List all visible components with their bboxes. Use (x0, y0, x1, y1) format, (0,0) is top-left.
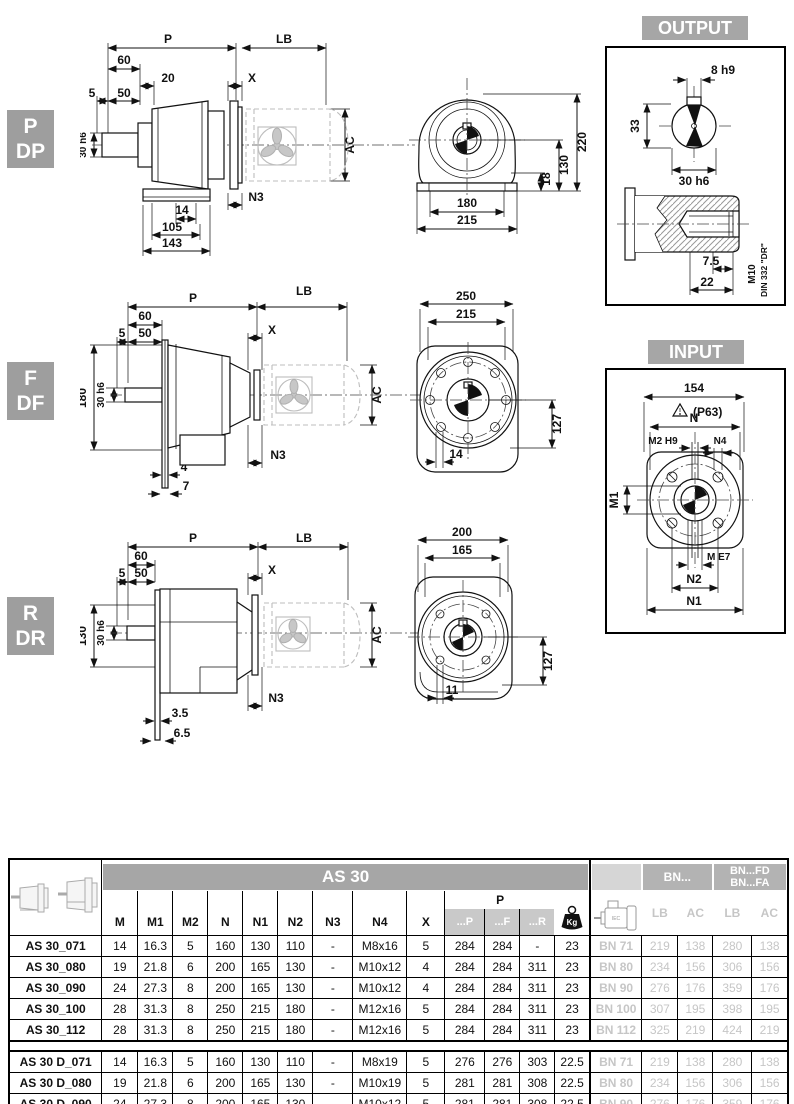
cell: 130 (243, 1051, 278, 1073)
cell: 22.5 (555, 1094, 590, 1104)
svg-text:LB: LB (296, 531, 312, 545)
svg-text:130: 130 (557, 155, 571, 175)
cell: 130 (278, 978, 313, 999)
cell: 165 (243, 978, 278, 999)
svg-text:P: P (189, 531, 197, 545)
input-drawing: 154 (P63) N M2 H9 N4 M1 M E7 N2 N1 (607, 370, 784, 632)
table-row: AS 30 D_0902427.38200165130-M10x12528128… (9, 1094, 788, 1104)
col-header-n4: N4 (353, 891, 407, 936)
cell: 4 (407, 978, 445, 999)
fdf-front-outline (410, 342, 526, 472)
cell: AS 30_100 (9, 999, 102, 1020)
svg-text:11: 11 (446, 683, 459, 697)
cell: 16.3 (138, 1051, 173, 1073)
output-title: OUTPUT (642, 16, 748, 40)
pdp-front-drawing: 220 130 18 180 215 (393, 66, 593, 251)
table-row: AS 30 D_0711416.35160130110-M8x195276276… (9, 1051, 788, 1073)
svg-text:8 h9: 8 h9 (711, 63, 735, 77)
fan-icon (258, 127, 296, 165)
cell: AS 30_112 (9, 1020, 102, 1042)
cell: 130 (278, 1073, 313, 1094)
pdp-side-drawing: P LB 60 20 5 50 30 h6 X AC N3 14 105 143 (80, 5, 430, 280)
cell: 156 (678, 957, 713, 978)
svg-text:M2 H9: M2 H9 (648, 436, 678, 447)
weight-header-cell: Kg (555, 891, 590, 936)
svg-text:143: 143 (162, 236, 182, 250)
variant-badge-fdf: F DF (7, 362, 54, 420)
badge-label: F (7, 366, 54, 391)
col-header-lb2: LB (713, 891, 752, 936)
cell: 424 (713, 1020, 752, 1042)
cell: BN 90 (590, 1094, 642, 1104)
cell: - (313, 978, 353, 999)
svg-text:5: 5 (119, 326, 126, 340)
cell: 6 (173, 957, 208, 978)
p-group-header: P ...P ...F ...R (445, 891, 555, 936)
cell: 311 (520, 957, 555, 978)
gearbox-icon (57, 876, 101, 916)
badge-label: P (7, 114, 54, 139)
kg-weight-icon: Kg (559, 905, 585, 932)
cell: M10x19 (353, 1073, 407, 1094)
cell: 219 (642, 936, 678, 957)
svg-text:30 h6: 30 h6 (96, 382, 107, 408)
cell: 5 (407, 1020, 445, 1042)
cell: 156 (752, 1073, 788, 1094)
cell: 5 (407, 1094, 445, 1104)
cell: 281 (445, 1073, 485, 1094)
svg-text:N3: N3 (268, 691, 284, 705)
cell: 160 (208, 1051, 243, 1073)
svg-text:180: 180 (457, 196, 477, 210)
cell: 23 (555, 978, 590, 999)
svg-text:N3: N3 (270, 448, 286, 462)
cell: 284 (485, 999, 520, 1020)
cell: 8 (173, 978, 208, 999)
bnfd-banner: BN...FD BN...FA (713, 859, 788, 891)
svg-text:N: N (690, 411, 699, 425)
fdf-front-drawing: 250 215 127 14 (390, 288, 595, 513)
svg-text:AC: AC (370, 626, 384, 644)
cell: 219 (678, 1020, 713, 1042)
col-header-n: N (208, 891, 243, 936)
cell: 215 (243, 999, 278, 1020)
svg-text:7: 7 (183, 479, 190, 493)
cell: 4 (407, 957, 445, 978)
svg-text:127: 127 (550, 414, 564, 434)
svg-text:X: X (248, 71, 256, 85)
cell: 234 (642, 957, 678, 978)
cell: 306 (713, 1073, 752, 1094)
cell: 160 (208, 936, 243, 957)
table-row: AS 30 D_0801921.86200165130-M10x19528128… (9, 1073, 788, 1094)
cell: 276 (445, 1051, 485, 1073)
cell: 284 (485, 978, 520, 999)
cell: M10x12 (353, 957, 407, 978)
svg-text:30 h6: 30 h6 (96, 620, 107, 646)
cell: BN 80 (590, 957, 642, 978)
cell: 156 (752, 957, 788, 978)
cell: 22.5 (555, 1073, 590, 1094)
cell: M8x19 (353, 1051, 407, 1073)
cell: 284 (445, 1020, 485, 1042)
svg-text:50: 50 (134, 566, 148, 580)
cell: 5 (407, 999, 445, 1020)
cell: 19 (102, 957, 138, 978)
cell: 5 (407, 936, 445, 957)
table-band-row: AS 30 BN... BN...FD BN...FA (9, 859, 788, 891)
cell: 27.3 (138, 1094, 173, 1104)
col-header-n3: N3 (313, 891, 353, 936)
cell: 284 (485, 957, 520, 978)
svg-text:LB: LB (296, 285, 312, 298)
series-banner: AS 30 (102, 859, 590, 891)
svg-text:30 h6: 30 h6 (679, 174, 710, 188)
cell: 138 (678, 936, 713, 957)
cell: 284 (445, 936, 485, 957)
svg-text:215: 215 (456, 307, 476, 321)
svg-text:50: 50 (138, 326, 152, 340)
svg-text:20: 20 (161, 71, 175, 85)
pdp-front-outline (409, 78, 525, 198)
cell: 280 (713, 936, 752, 957)
col-header-n2: N2 (278, 891, 313, 936)
svg-text:IEC: IEC (612, 916, 621, 922)
series-title: AS 30 (103, 864, 588, 890)
cell: 276 (642, 1094, 678, 1104)
output-panel: 8 h9 33 30 h6 7.5 22 M10 DIN 332 "DR" (605, 46, 786, 306)
cell: 5 (407, 1051, 445, 1073)
svg-text:LB: LB (276, 32, 292, 46)
cell: 19 (102, 1073, 138, 1094)
cell: AS 30 D_080 (9, 1073, 102, 1094)
cell: 138 (678, 1051, 713, 1073)
col-header-m1: M1 (138, 891, 173, 936)
cell: 22.5 (555, 1051, 590, 1073)
rdr-front-outline (408, 577, 518, 699)
svg-text:N4: N4 (714, 436, 727, 447)
svg-text:180: 180 (80, 388, 89, 408)
cell: 311 (520, 978, 555, 999)
cell: 165 (243, 957, 278, 978)
cell: 284 (445, 978, 485, 999)
motor-band-cell (590, 859, 642, 891)
input-panel: 154 (P63) N M2 H9 N4 M1 M E7 N2 N1 (605, 368, 786, 634)
col-header-x: X (407, 891, 445, 936)
svg-text:60: 60 (117, 53, 131, 67)
cell: 176 (752, 1094, 788, 1104)
cell: 130 (243, 936, 278, 957)
cell: 250 (208, 999, 243, 1020)
cell: 31.3 (138, 1020, 173, 1042)
svg-text:14: 14 (449, 447, 463, 461)
cell: BN 71 (590, 936, 642, 957)
svg-text:M1: M1 (607, 491, 621, 508)
cell: - (313, 1051, 353, 1073)
bnfa-label: BN...FA (714, 877, 786, 889)
svg-text:30 h6: 30 h6 (80, 132, 89, 158)
svg-text:105: 105 (162, 220, 182, 234)
cell: 165 (243, 1094, 278, 1104)
cell: - (313, 957, 353, 978)
cell: 219 (752, 1020, 788, 1042)
col-header-m2: M2 (173, 891, 208, 936)
rdr-motor-ghost (264, 603, 360, 667)
cell: 200 (208, 1073, 243, 1094)
cell: 8 (173, 1094, 208, 1104)
badge-label: DF (7, 391, 54, 416)
svg-text:33: 33 (628, 119, 642, 133)
cell: 398 (713, 999, 752, 1020)
output-section-view: 7.5 22 M10 DIN 332 "DR" (617, 188, 769, 297)
table-row: AS 30_1122831.38250215180-M12x1652842843… (9, 1020, 788, 1042)
cell: - (313, 1020, 353, 1042)
col-header-p-p: ...P (445, 909, 484, 935)
cell: - (313, 936, 353, 957)
cell: 21.8 (138, 957, 173, 978)
datasheet-page: P DP F DF R DR P LB 60 20 5 50 30 h6 X A… (0, 0, 794, 1104)
cell: 284 (485, 1020, 520, 1042)
cell: 8 (173, 999, 208, 1020)
cell: 28 (102, 1020, 138, 1042)
cell: 281 (445, 1094, 485, 1104)
cell: 359 (713, 978, 752, 999)
cell: 14 (102, 936, 138, 957)
badge-label: DP (7, 139, 54, 164)
cell: 24 (102, 1094, 138, 1104)
cell: 24 (102, 978, 138, 999)
p-group-label: P (445, 891, 555, 909)
svg-text:22: 22 (700, 275, 714, 289)
svg-text:5: 5 (89, 86, 96, 100)
cell: 195 (678, 999, 713, 1020)
svg-text:154: 154 (684, 381, 704, 395)
input-flange-outline (637, 432, 753, 568)
cell: 281 (485, 1094, 520, 1104)
cell: 200 (208, 957, 243, 978)
cell: 284 (445, 957, 485, 978)
cell: BN 71 (590, 1051, 642, 1073)
spec-table-body: AS 30_0711416.35160130110-M8x165284284-2… (9, 936, 788, 1104)
badge-label: DR (7, 626, 54, 651)
svg-text:127: 127 (541, 651, 555, 671)
svg-text:6.5: 6.5 (174, 726, 191, 740)
cell: 176 (678, 1094, 713, 1104)
col-header-p-f: ...F (484, 909, 519, 935)
cell: 180 (278, 999, 313, 1020)
motor-icon: IEC (593, 898, 639, 932)
cell: - (313, 999, 353, 1020)
cell: 195 (752, 999, 788, 1020)
svg-text:7.5: 7.5 (703, 254, 720, 268)
svg-text:18: 18 (539, 172, 553, 186)
table-row: AS 30_1002831.38250215180-M12x1652842843… (9, 999, 788, 1020)
cell: 23 (555, 936, 590, 957)
svg-text:60: 60 (134, 549, 148, 563)
cell: 5 (173, 936, 208, 957)
svg-text:130: 130 (80, 626, 89, 646)
cell: BN 100 (590, 999, 642, 1020)
svg-text:Kg: Kg (567, 918, 578, 927)
svg-text:X: X (268, 323, 276, 337)
col-header-p-r: ...R (519, 909, 554, 935)
cell: 176 (752, 978, 788, 999)
cell: 110 (278, 936, 313, 957)
cell: 23 (555, 1020, 590, 1042)
cell: 284 (485, 936, 520, 957)
cell: 276 (642, 978, 678, 999)
cell: - (313, 1073, 353, 1094)
table-row: AS 30_0711416.35160130110-M8x165284284-2… (9, 936, 788, 957)
output-drawing: 8 h9 33 30 h6 7.5 22 M10 DIN 332 "DR" (607, 48, 784, 304)
cell: 306 (713, 957, 752, 978)
svg-text:3.5: 3.5 (172, 706, 189, 720)
cell: M12x16 (353, 999, 407, 1020)
cell: 27.3 (138, 978, 173, 999)
gearbox-icon (10, 880, 54, 916)
output-shaft-end: 8 h9 33 30 h6 (628, 63, 735, 188)
cell: 6 (173, 1073, 208, 1094)
svg-text:P: P (189, 291, 197, 305)
fan-icon (278, 619, 308, 649)
cell: 250 (208, 1020, 243, 1042)
cell: 156 (678, 1073, 713, 1094)
svg-text:DIN 332 "DR": DIN 332 "DR" (759, 243, 769, 297)
table-row: AS 30_0902427.38200165130-M10x1242842843… (9, 978, 788, 999)
svg-text:60: 60 (138, 309, 152, 323)
rdr-front-drawing: 200 165 127 11 (390, 522, 595, 737)
cell: 359 (713, 1094, 752, 1104)
cell: 219 (642, 1051, 678, 1073)
bnfd-label: BN...FD (714, 865, 786, 877)
svg-text:N1: N1 (686, 594, 702, 608)
cell: BN 80 (590, 1073, 642, 1094)
cell: 325 (642, 1020, 678, 1042)
cell: AS 30 D_090 (9, 1094, 102, 1104)
cell: M10x12 (353, 978, 407, 999)
cell: 284 (445, 999, 485, 1020)
table-header-row: M M1 M2 N N1 N2 N3 N4 X P ...P ...F ...R (9, 891, 788, 936)
spec-table: AS 30 BN... BN...FD BN...FA M M1 M2 N N1… (8, 858, 789, 1104)
cell: 21.8 (138, 1073, 173, 1094)
cell: 110 (278, 1051, 313, 1073)
cell: 180 (278, 1020, 313, 1042)
svg-text:165: 165 (452, 543, 472, 557)
cell: - (520, 936, 555, 957)
cell: 165 (243, 1073, 278, 1094)
svg-text:50: 50 (117, 86, 131, 100)
input-title: INPUT (648, 340, 744, 364)
cell: - (313, 1094, 353, 1104)
gearbox-icons-cell (9, 859, 102, 936)
col-header-ac: AC (678, 891, 713, 936)
svg-text:M E7: M E7 (707, 552, 731, 563)
svg-text:200: 200 (452, 525, 472, 539)
cell: 138 (752, 936, 788, 957)
cell: AS 30_071 (9, 936, 102, 957)
table-group-gap (9, 1041, 788, 1051)
table-row: AS 30_0801921.86200165130-M10x1242842843… (9, 957, 788, 978)
cell: 8 (173, 1020, 208, 1042)
col-header-m: M (102, 891, 138, 936)
cell: 23 (555, 999, 590, 1020)
variant-badge-pdp: P DP (7, 110, 54, 168)
cell: AS 30_080 (9, 957, 102, 978)
cell: 16.3 (138, 936, 173, 957)
cell: 307 (642, 999, 678, 1020)
svg-text:N3: N3 (248, 190, 264, 204)
bn-label: BN... (643, 871, 712, 883)
svg-text:250: 250 (456, 289, 476, 303)
cell: 311 (520, 1020, 555, 1042)
cell: 234 (642, 1073, 678, 1094)
cell: 200 (208, 1094, 243, 1104)
cell: 23 (555, 957, 590, 978)
col-header-n1: N1 (243, 891, 278, 936)
cell: 311 (520, 999, 555, 1020)
svg-text:215: 215 (457, 213, 477, 227)
svg-text:P: P (164, 32, 172, 46)
motor-header-cell: IEC (590, 891, 642, 936)
cell: 5 (173, 1051, 208, 1073)
cell: 308 (520, 1073, 555, 1094)
cell: 303 (520, 1051, 555, 1073)
cell: 5 (407, 1073, 445, 1094)
badge-label: R (7, 601, 54, 626)
svg-text:X: X (268, 563, 276, 577)
cell: 215 (243, 1020, 278, 1042)
cell: 130 (278, 1094, 313, 1104)
cell: M12x16 (353, 1020, 407, 1042)
cell: 200 (208, 978, 243, 999)
cell: 130 (278, 957, 313, 978)
cell: 308 (520, 1094, 555, 1104)
cell: BN 90 (590, 978, 642, 999)
svg-text:5: 5 (119, 566, 126, 580)
svg-text:N2: N2 (686, 572, 702, 586)
cell: 14 (102, 1051, 138, 1073)
svg-text:14: 14 (175, 203, 189, 217)
col-header-lb: LB (642, 891, 678, 936)
cell: AS 30 D_071 (9, 1051, 102, 1073)
cell: AS 30_090 (9, 978, 102, 999)
cell: BN 112 (590, 1020, 642, 1042)
cell: 276 (485, 1051, 520, 1073)
bn-banner: BN... (642, 859, 713, 891)
cell: M10x12 (353, 1094, 407, 1104)
cell: 176 (678, 978, 713, 999)
variant-badge-rdr: R DR (7, 597, 54, 655)
cell: 280 (713, 1051, 752, 1073)
cell: 138 (752, 1051, 788, 1073)
svg-text:220: 220 (575, 132, 589, 152)
cell: 31.3 (138, 999, 173, 1020)
cell: M8x16 (353, 936, 407, 957)
svg-text:M10: M10 (747, 264, 758, 284)
cell: 281 (485, 1073, 520, 1094)
cell: 28 (102, 999, 138, 1020)
col-header-ac2: AC (752, 891, 788, 936)
